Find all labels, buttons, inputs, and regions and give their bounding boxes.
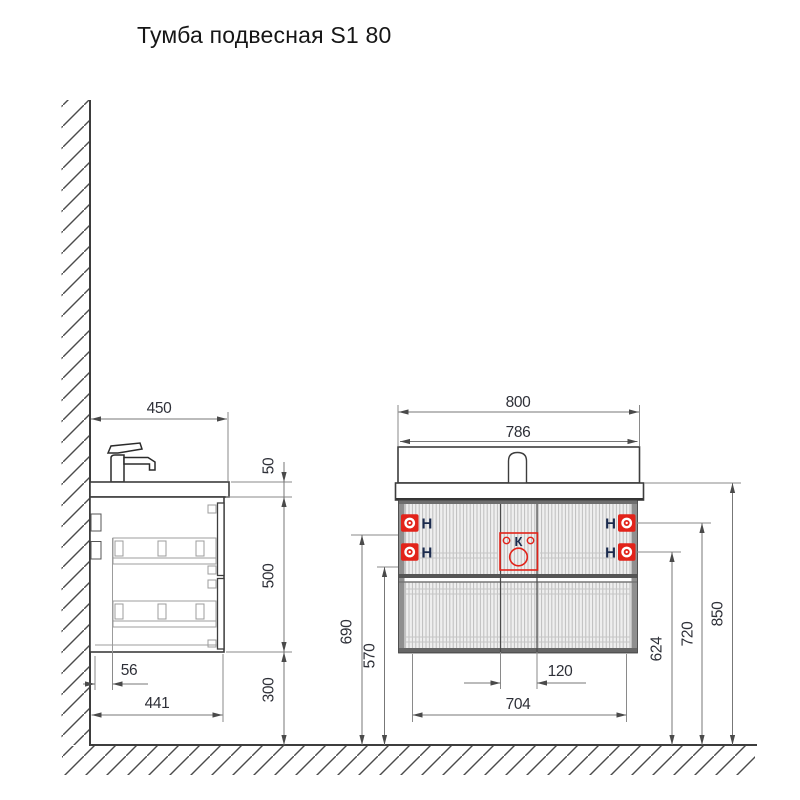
wall-bracket-upper — [91, 514, 101, 531]
side-countertop — [90, 482, 229, 497]
mount-point-icon — [618, 514, 636, 532]
side-view — [90, 443, 229, 652]
mount-point-icon — [401, 514, 419, 532]
dim-cabinet-height: 500 — [261, 563, 278, 588]
technical-drawing-page: Тумба подвесная S1 80 — [0, 0, 800, 800]
dim-wall-offset: 56 — [121, 662, 137, 679]
wall-hatch — [62, 100, 90, 745]
dim-total-depth: 441 — [145, 695, 170, 712]
dim-basin-width: 786 — [506, 424, 531, 441]
dim-mount-left-upper-height: 690 — [339, 619, 356, 644]
dim-drawer-bottom-height: 570 — [362, 643, 379, 668]
mount-label: Н — [605, 516, 616, 533]
mount-label: Н — [422, 545, 433, 562]
wall — [62, 100, 91, 746]
dim-mount-span: 704 — [506, 696, 531, 713]
side-upper-drawer-front — [218, 503, 225, 576]
dim-floor-clearance: 300 — [261, 677, 278, 702]
dim-overall-width: 800 — [506, 394, 531, 411]
mount-point-icon — [618, 543, 636, 561]
wall-bracket-lower — [91, 542, 101, 560]
mount-label: Н — [422, 516, 433, 533]
drain-label: К — [515, 534, 523, 549]
mount-label: Н — [605, 545, 616, 562]
lower-drawer-facade — [404, 582, 633, 648]
front-view: Н Н Н Н К — [396, 447, 644, 653]
dim-countertop-depth: 450 — [147, 400, 172, 417]
faucet-hole — [509, 453, 527, 484]
side-cabinet-body — [90, 497, 224, 652]
floor-hatch — [62, 746, 755, 775]
drawer-divider — [399, 574, 637, 578]
faucet-icon — [108, 443, 155, 482]
dim-countertop-thickness: 50 — [261, 457, 278, 474]
vanity-installation-diagram: Тумба подвесная S1 80 — [0, 0, 800, 800]
side-lower-drawer-front — [218, 579, 225, 650]
dim-mount-right-lower-height: 624 — [649, 636, 666, 661]
page-title: Тумба подвесная S1 80 — [137, 22, 391, 48]
dim-overall-height: 850 — [710, 601, 727, 626]
mount-point-icon — [401, 543, 419, 561]
floor — [62, 745, 757, 775]
dim-drain-zone-width: 120 — [548, 663, 573, 680]
dim-mount-right-upper-height: 720 — [680, 621, 697, 646]
front-countertop — [396, 483, 644, 500]
